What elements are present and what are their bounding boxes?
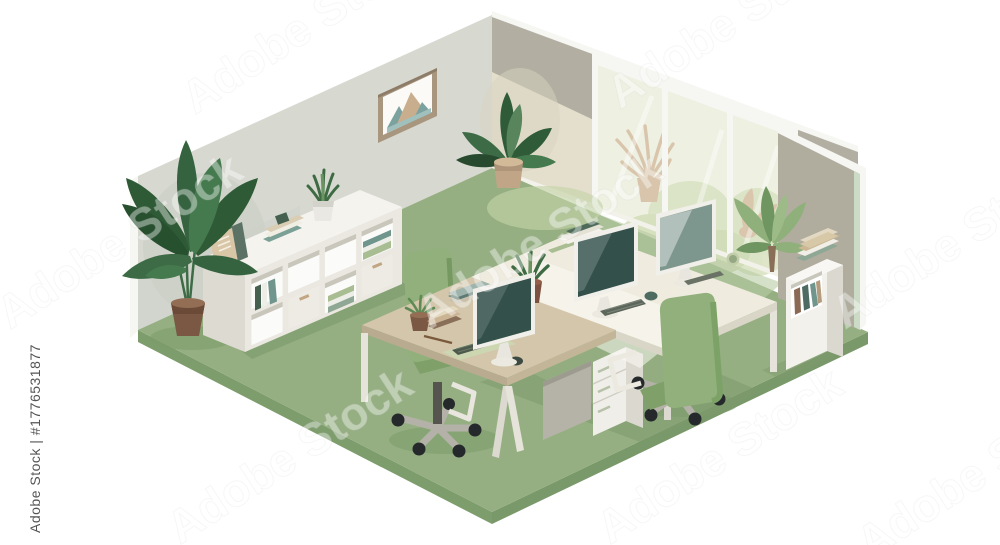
chair1-column [433,382,442,424]
watermark-text: Adobe Stock [847,371,1000,545]
banana-plant-pot [171,298,205,336]
corner-plant-pot [494,158,523,189]
mouse-2 [645,292,658,301]
isometric-office-illustration: Adobe Stock Adobe Stock Adobe Stock Adob… [0,0,1000,545]
stock-image-canvas: Adobe Stock Adobe Stock Adobe Stock Adob… [0,0,1000,545]
white-desk-leg [770,308,777,372]
watermark-credit-vertical: Adobe Stock | #1776531877 [27,344,43,533]
